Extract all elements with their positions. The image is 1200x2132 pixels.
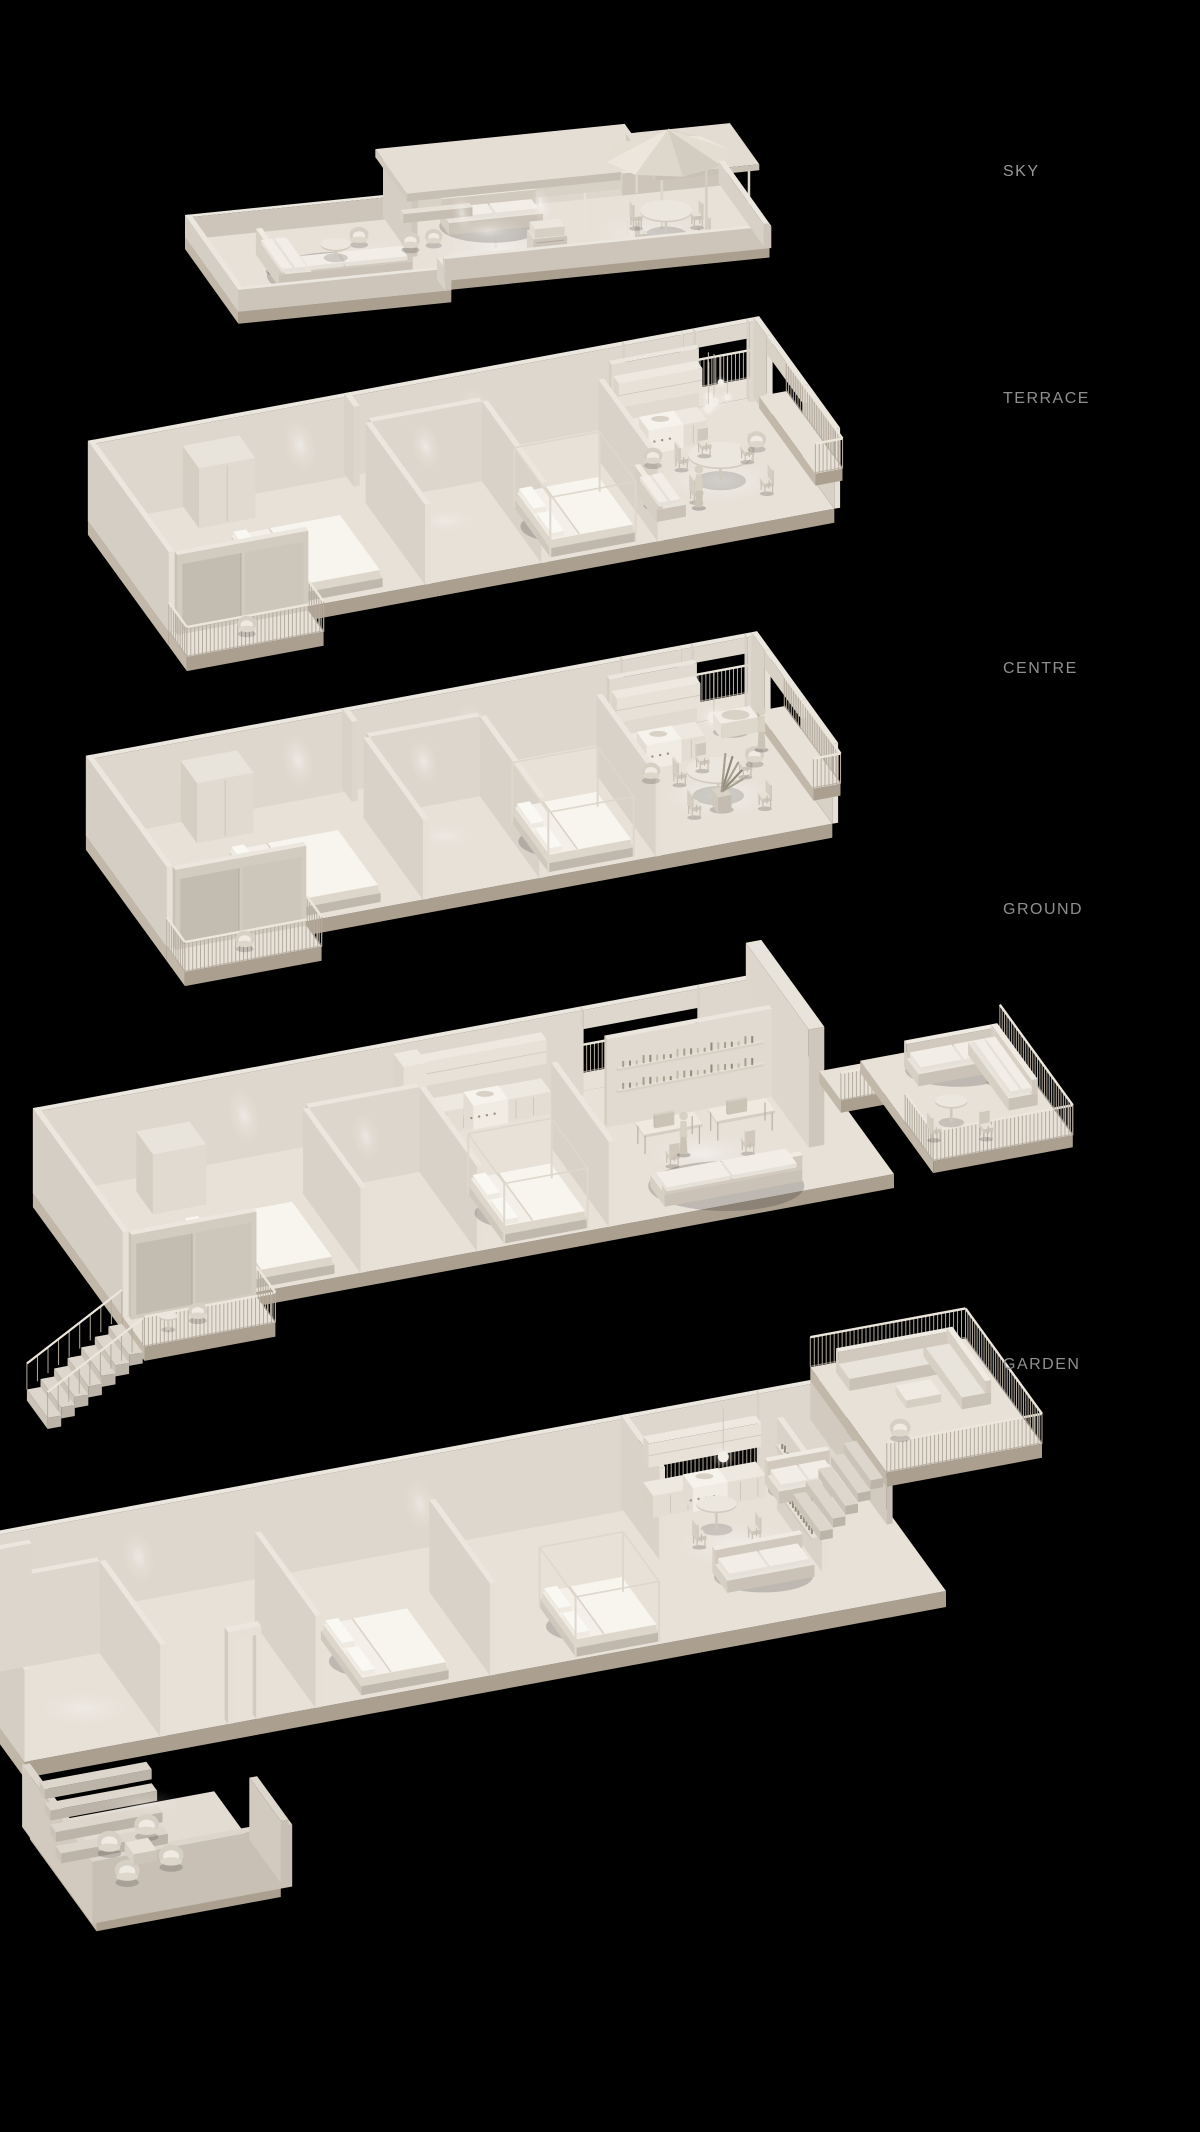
wardrobe <box>136 1122 206 1215</box>
floor-label-sky[interactable]: SKY <box>1003 164 1040 180</box>
tub-chair <box>425 229 442 248</box>
floor-label-terrace[interactable]: TERRACE <box>1003 391 1090 407</box>
tub-chair <box>641 763 660 784</box>
floor-render-sky[interactable] <box>185 123 771 324</box>
tub-chair <box>401 232 420 253</box>
sunken-patio <box>22 1762 292 1931</box>
tub-chair <box>350 227 369 248</box>
wardrobe <box>181 750 254 843</box>
floor-label-garden[interactable]: GARDEN <box>1003 1357 1080 1373</box>
floor-label-centre[interactable]: CENTRE <box>1003 661 1078 677</box>
tub-chair <box>890 1419 911 1442</box>
tub-chair <box>237 616 256 637</box>
tub-chair <box>97 1831 122 1858</box>
lounge-balcony <box>860 1005 1073 1173</box>
floor-render-terrace[interactable] <box>88 316 843 671</box>
floorplan-stack: SKY TERRACE CENTRE GROUND GARDEN <box>0 0 1200 2132</box>
floor-render-garden[interactable] <box>0 1308 1042 1931</box>
floor-render-centre[interactable] <box>86 631 841 986</box>
floorplan-render-canvas <box>0 0 1200 2132</box>
tub-chair <box>235 931 254 952</box>
tub-chair <box>188 1303 207 1324</box>
tub-chair <box>643 448 662 469</box>
tub-chair <box>747 431 766 452</box>
floor-label-ground[interactable]: GROUND <box>1003 902 1083 918</box>
wardrobe <box>183 435 256 528</box>
tub-chair <box>159 1845 184 1872</box>
